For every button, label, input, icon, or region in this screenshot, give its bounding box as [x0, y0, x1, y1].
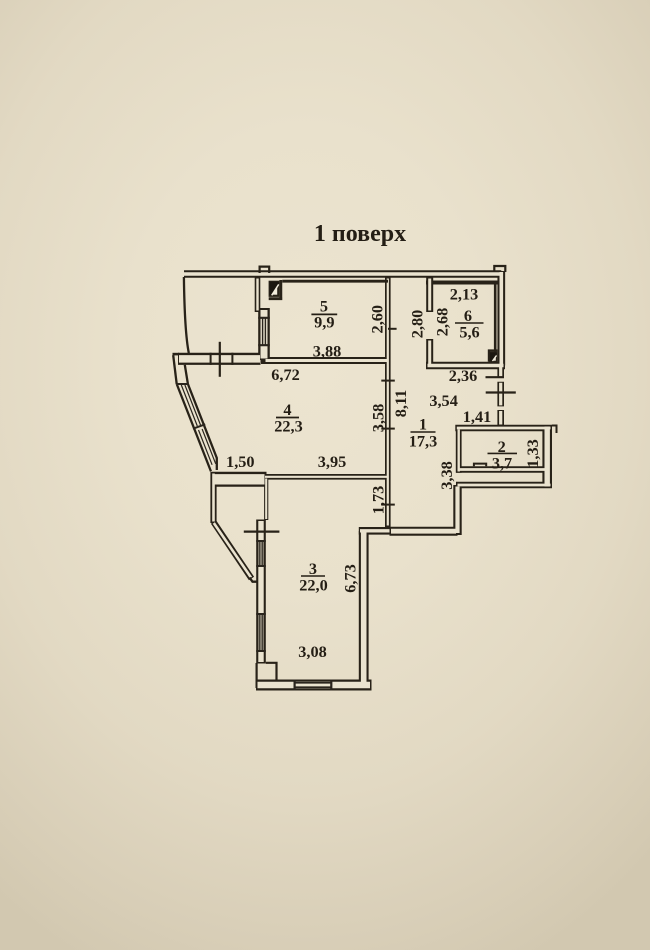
svg-text:1,33: 1,33 — [523, 439, 542, 468]
svg-text:3,95: 3,95 — [318, 452, 347, 471]
svg-text:2,36: 2,36 — [449, 366, 478, 385]
svg-text:2,13: 2,13 — [450, 285, 479, 304]
svg-text:17,3: 17,3 — [409, 432, 438, 451]
svg-text:1 поверх: 1 поверх — [314, 221, 406, 247]
svg-text:6,72: 6,72 — [271, 365, 300, 384]
svg-text:5,6: 5,6 — [459, 323, 479, 342]
svg-text:2,80: 2,80 — [408, 310, 427, 339]
svg-text:3,54: 3,54 — [429, 391, 458, 410]
svg-text:2,60: 2,60 — [368, 305, 387, 334]
svg-text:8,11: 8,11 — [391, 390, 410, 418]
svg-text:3,7: 3,7 — [492, 454, 512, 473]
svg-text:1,50: 1,50 — [226, 452, 255, 471]
svg-text:3,38: 3,38 — [437, 461, 456, 490]
svg-text:22,3: 22,3 — [274, 417, 303, 436]
svg-text:2,68: 2,68 — [433, 308, 452, 337]
svg-text:1,73: 1,73 — [369, 486, 388, 515]
svg-text:22,0: 22,0 — [299, 576, 328, 595]
svg-text:9,9: 9,9 — [314, 312, 334, 331]
svg-text:3,08: 3,08 — [298, 642, 327, 661]
svg-text:3,88: 3,88 — [313, 342, 342, 361]
svg-text:1,41: 1,41 — [463, 407, 492, 426]
svg-text:3,58: 3,58 — [369, 404, 388, 433]
svg-text:6,73: 6,73 — [341, 564, 360, 593]
